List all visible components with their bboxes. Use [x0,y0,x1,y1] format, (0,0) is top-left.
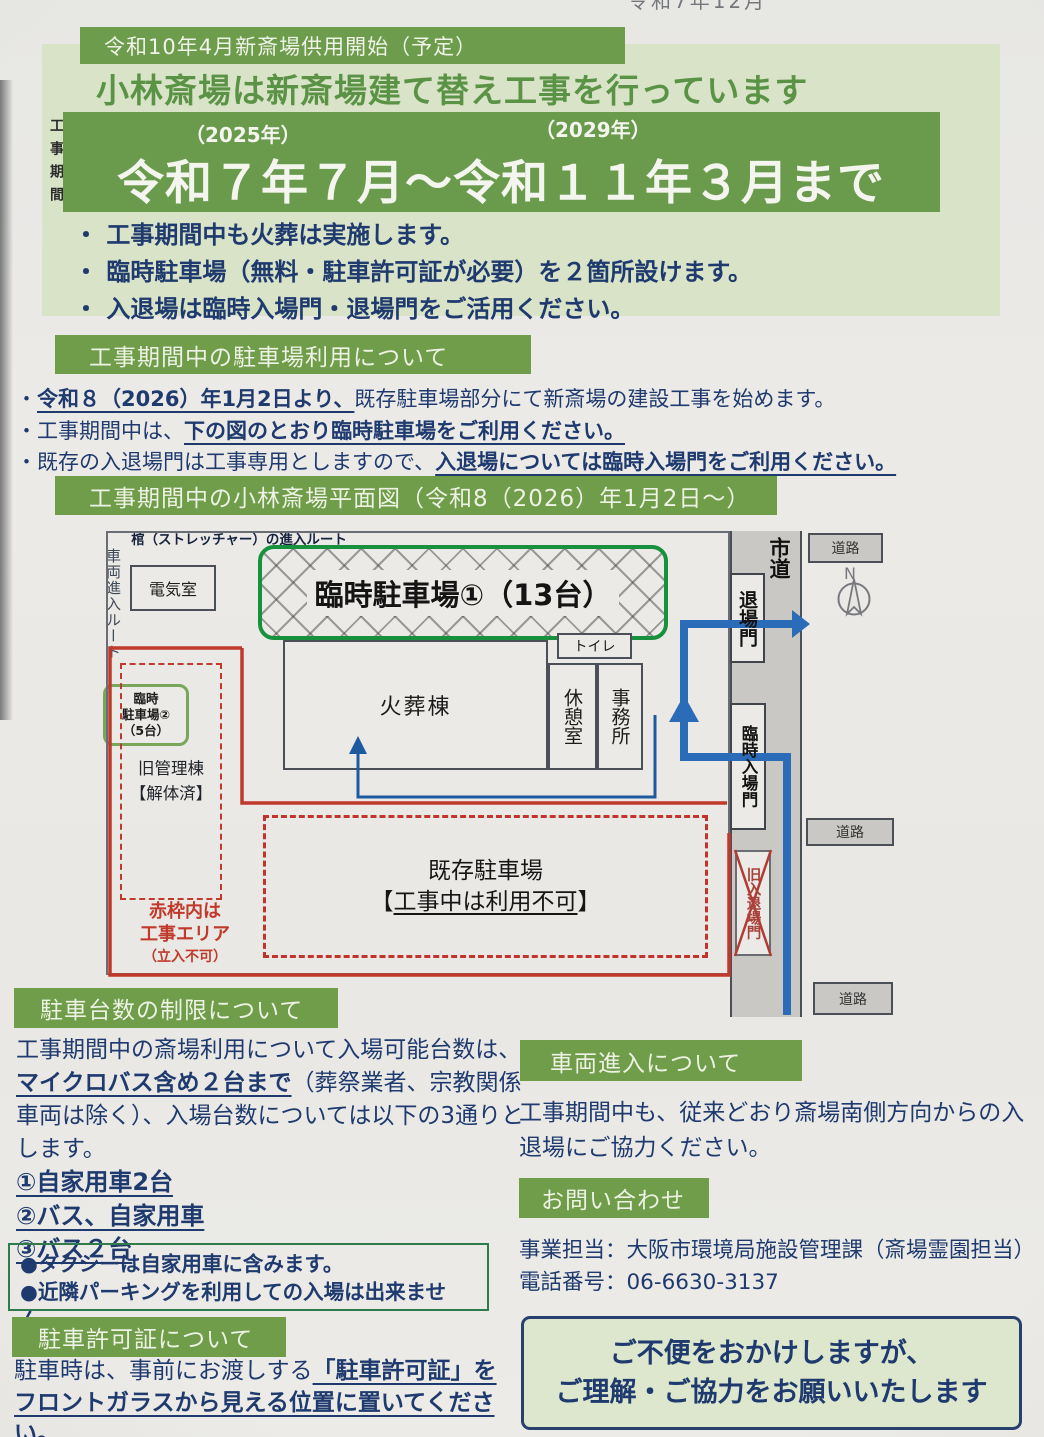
existing-parking-status: 【工事中は利用不可】 [371,887,601,918]
parking-use-line-1: ・令和８（2026）年1月2日より、既存駐車場部分にて新斎場の建設工事を始めます… [16,384,1026,416]
old-admin-building-label: 旧管理棟 【解体済】 [117,756,225,806]
note-taxi: ●タクシーは自家用車に含みます。 [20,1250,477,1278]
intro-bullet-2: ・ 臨時駐車場（無料・駐車許可証が必要）を２箇所設けます。 [74,254,752,291]
rest-room-box: 休憩室 [548,663,597,770]
parking-limit-body: 工事期間中の斎場利用について入場可能台数は、マイクロバス含め２台まで（葬祭業者、… [16,1034,524,1166]
parking-use-lines: ・令和８（2026）年1月2日より、既存駐車場部分にて新斎場の建設工事を始めます… [16,384,1026,479]
intro-bullet-list: ・ 工事期間中も火葬は実施します。 ・ 臨時駐車場（無料・駐車許可証が必要）を２… [74,217,752,328]
old-admin-status: 【解体済】 [117,781,225,806]
body-text: 工事期間中の斎場利用について入場可能台数は、 [16,1037,521,1063]
parking-use-line-2: ・工事期間中は、下の図のとおり臨時駐車場をご利用ください。 [16,416,1026,448]
line-text: ・ [16,387,37,411]
bracket: 】 [578,889,601,915]
office-box: 事務所 [597,663,643,770]
exit-gate-label: 退場門 [730,573,765,663]
unavailable-text: 工事中は利用不可 [394,889,578,915]
section-heading-permit: 駐車許可証について [12,1317,286,1357]
year-end-label: （2029年） [535,114,651,143]
section-heading-parking-use: 工事期間中の駐車場利用について [55,335,531,374]
line-text: 既存駐車場部分にて新斎場の建設工事を始めます。 [354,387,835,411]
compass-needle-icon [847,579,861,614]
closing-line-2: ご理解・ご協力をお願いいたします [556,1373,988,1412]
permit-body: 駐車時は、事前にお渡しする「駐車許可証」をフロントガラスから見える位置に置いてく… [14,1356,508,1437]
compass-circle [839,584,870,615]
cropped-top-text: 令和7年12月 [628,0,818,14]
parking-use-line-3: ・既存の入退場門は工事専用としますので、入退場については臨時入場門をご利用くださ… [16,447,1026,479]
construction-period-text: 令和７年７月～令和１１年３月まで [83,144,919,213]
closing-line-1: ご不便をおかけしますが、 [610,1334,933,1373]
line-text: ・工事期間中は、 [16,419,184,443]
line-text-emphasis: 令和８（2026）年1月2日より、 [37,387,354,411]
line-text: ・既存の入退場門は工事専用としますので、 [16,450,435,474]
intro-bullet-1: ・ 工事期間中も火葬は実施します。 [74,217,752,254]
road-box-top: 道路 [808,533,883,563]
parking-notes-box: ●タクシーは自家用車に含みます。 ●近隣パーキングを利用しての入場は出来ません。 [8,1243,489,1311]
existing-parking-box: 既存駐車場 【工事中は利用不可】 [263,815,708,958]
option-1: ①自家用車2台 [16,1166,204,1200]
crematory-box: 火葬棟 [283,640,548,770]
temp-parking1-box: 臨時駐車場①（13台） [258,545,668,640]
temp-parking1-label: 臨時駐車場①（13台） [307,570,620,616]
option-2: ②バス、自家用車 [16,1200,204,1234]
body-text: 駐車時は、事前にお渡しする [14,1358,313,1384]
closing-message-box: ご不便をおかけしますが、 ご理解・ご協力をお願いいたします [521,1316,1022,1430]
city-road-label: 市道 [764,537,794,579]
road-box-middle: 道路 [806,818,894,846]
body-text-emphasis: マイクロバス含め２台まで [16,1070,292,1096]
note-line: （立入不可） [110,946,260,969]
contact-phone: 電話番号：06-6630-3137 [519,1267,1029,1299]
toilet-box: トイレ [557,633,632,659]
road-box-bottom: 道路 [813,982,893,1015]
construction-period-band: （2025年） （2029年） 令和７年７月～令和１１年３月まで [63,112,940,212]
line-text-emphasis: 入退場については臨時入場門をご利用ください。 [435,450,896,474]
temp-entrance-gate-label: 臨時入場門 [730,703,766,830]
bracket: 【 [371,889,394,915]
site-map: 電気室 臨時駐車場①（13台） トイレ 火葬棟 休憩室 事務所 旧管理棟 【解体… [103,528,905,1020]
line-text-emphasis: 下の図のとおり臨時駐車場をご利用ください。 [184,419,625,443]
section-heading-contact: お問い合わせ [519,1178,709,1218]
flyer-page: 令和7年12月 令和10年4月新斎場供用開始（予定） 小林斎場は新斎場建て替え工… [0,0,1044,1437]
note-line: 工事エリア [110,923,260,946]
banner-pre-title: 令和10年4月新斎場供用開始（予定） [80,27,625,64]
note-line: 赤枠内は [110,900,260,923]
page-title: 小林斎場は新斎場建て替え工事を行っています [96,64,1001,112]
north-label: N [844,564,856,583]
construction-area-note: 赤枠内は 工事エリア （立入不可） [110,900,260,969]
section-heading-vehicle-entry: 車両進入について [520,1040,802,1081]
existing-parking-name: 既存駐車場 [428,856,543,887]
section-heading-parking-limit: 駐車台数の制限について [14,988,338,1028]
photo-edge-shadow [0,80,13,720]
intro-bullet-3: ・ 入退場は臨時入場門・退場門をご活用ください。 [74,291,752,328]
contact-department: 事業担当：大阪市環境局施設管理課（斎場霊園担当） [519,1235,1029,1267]
old-admin-name: 旧管理棟 [117,756,225,781]
old-gate-label: 旧入退場門 [735,850,771,956]
section-heading-site-map: 工事期間中の小林斎場平面図（令和8（2026）年1月2日～） [55,476,777,515]
contact-info: 事業担当：大阪市環境局施設管理課（斎場霊園担当） 電話番号：06-6630-31… [519,1235,1029,1299]
electrical-room-box: 電気室 [130,565,216,611]
vehicle-entry-body: 工事期間中も、従来どおり斎場南側方向からの入退場にご協力ください。 [519,1096,1029,1166]
